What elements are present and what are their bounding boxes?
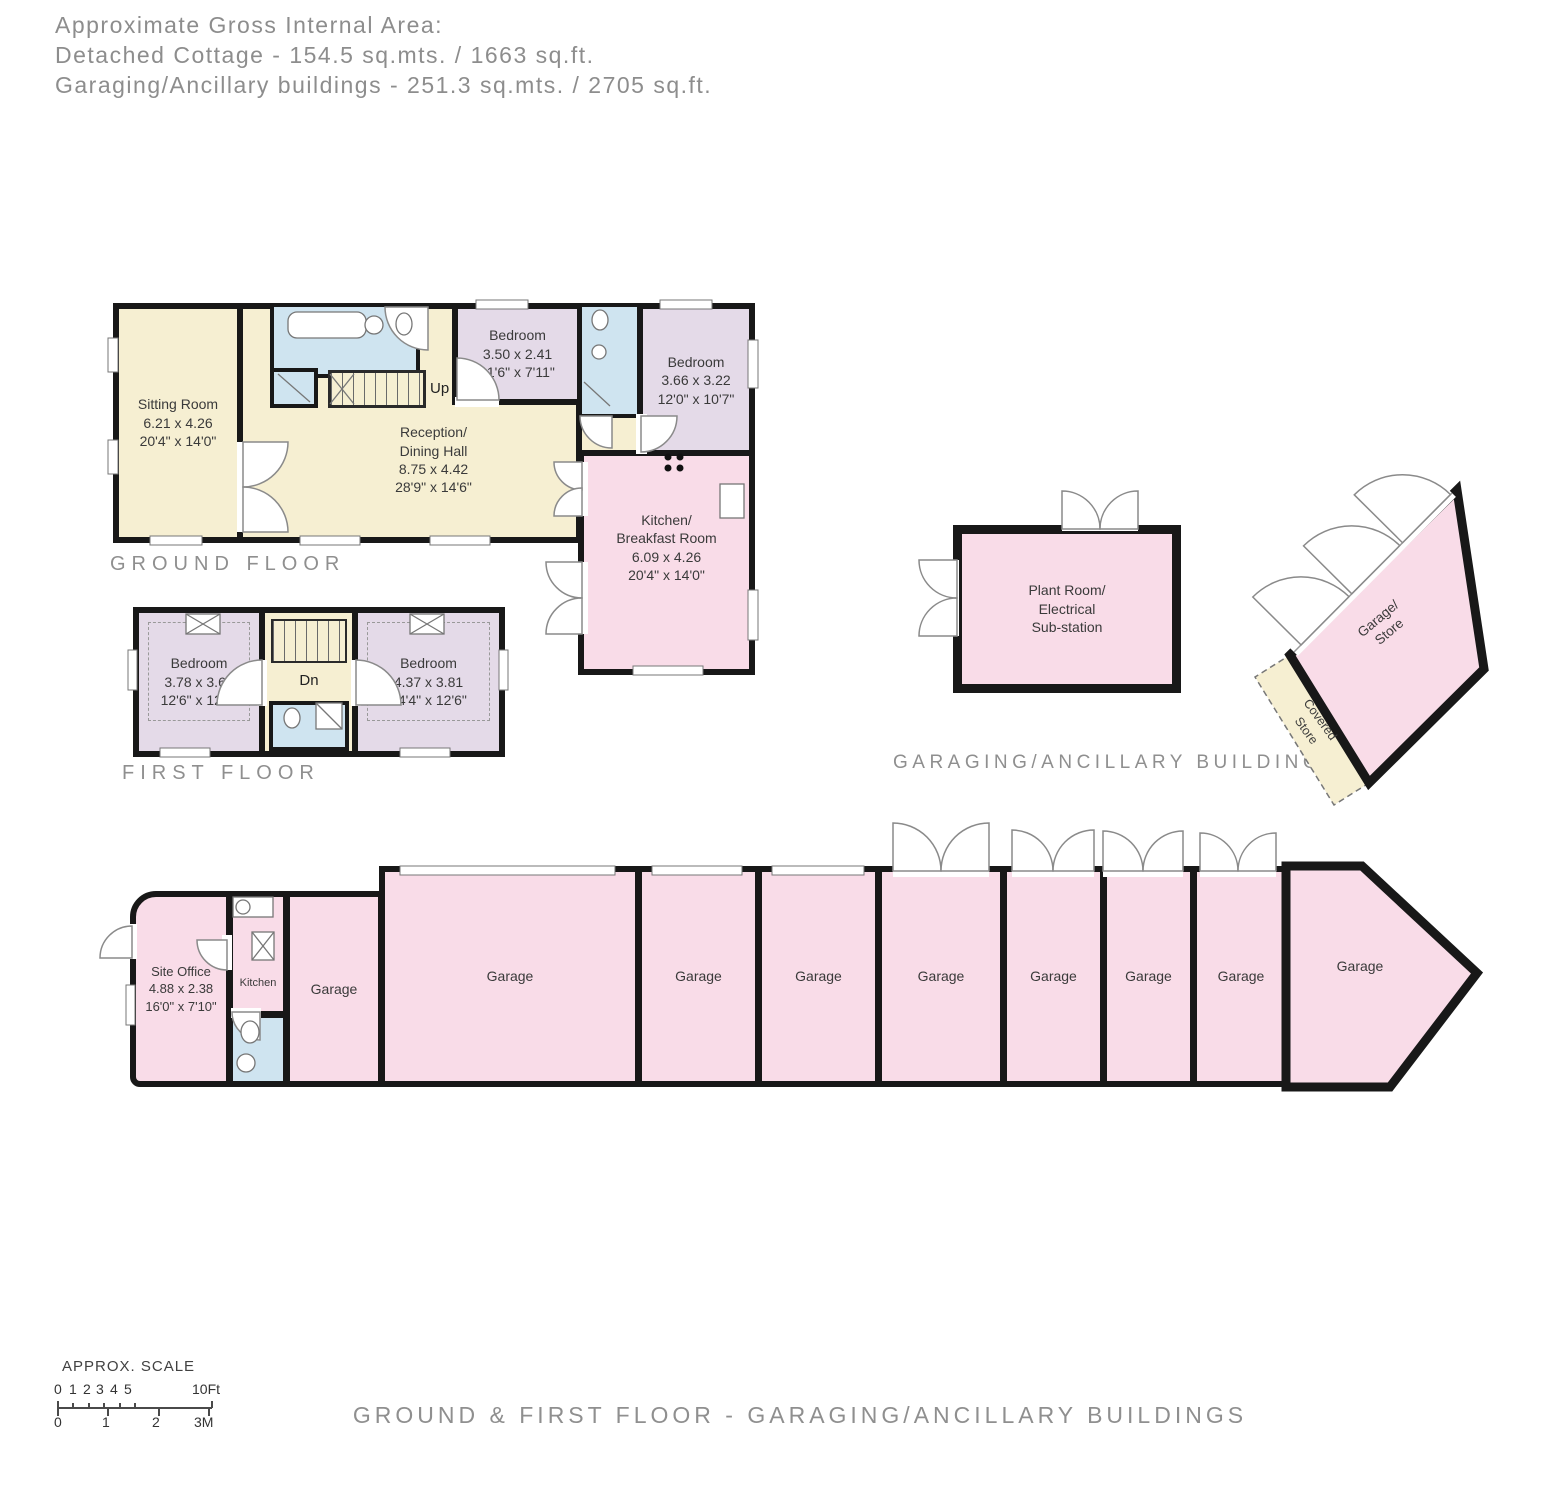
room-garage-8: Garage bbox=[1191, 866, 1291, 1087]
sitting-room-label: Sitting Room bbox=[138, 395, 218, 413]
garage-label: Garage bbox=[487, 967, 534, 985]
approx-scale-title: APPROX. SCALE bbox=[62, 1358, 195, 1375]
scale-m-2: 2 bbox=[152, 1414, 160, 1430]
garaging-ancillary-label: GARAGING/ANCILLARY BUILDINGS bbox=[893, 752, 1339, 774]
scale-ft-2: 2 bbox=[83, 1381, 91, 1397]
room-garage-9-label: Garage bbox=[1300, 958, 1420, 974]
plant-room-label-1: Plant Room/ bbox=[1028, 581, 1105, 599]
garage-store-label-2: Store bbox=[1372, 615, 1406, 647]
scale-m-0: 0 bbox=[54, 1414, 62, 1430]
room-garage-3: Garage bbox=[636, 866, 761, 1087]
header-line-3: Garaging/Ancillary buildings - 251.3 sq.… bbox=[55, 70, 712, 100]
reception-label-2: Dining Hall bbox=[400, 442, 468, 460]
stairs-up-label: Up bbox=[430, 380, 449, 397]
garage-store-area bbox=[1290, 490, 1484, 783]
garage-label: Garage bbox=[795, 967, 842, 985]
covered-store-label-1: Covered bbox=[1301, 696, 1340, 742]
sitting-room-dims-ft: 20'4" x 14'0" bbox=[140, 432, 217, 450]
scale-m-1: 1 bbox=[102, 1414, 110, 1430]
room-gf-ensuite bbox=[578, 303, 642, 418]
room-garage-wc bbox=[227, 1012, 289, 1087]
bedroom1-dims-ft: 11'6" x 7'11" bbox=[480, 363, 555, 381]
kitchen-label-2: Breakfast Room bbox=[616, 529, 716, 547]
gf-stairs bbox=[328, 370, 426, 408]
room-garage-1: Garage bbox=[284, 891, 384, 1087]
room-gf-shower bbox=[270, 368, 318, 408]
room-ff-bedroom-1: Bedroom 3.78 x 3.66 12'6" x 12'0" bbox=[133, 607, 265, 757]
room-garage-kitchen: Kitchen bbox=[227, 891, 289, 1017]
plant-room-label-2: Electrical bbox=[1039, 600, 1096, 618]
gross-internal-area-heading: Approximate Gross Internal Area: Detache… bbox=[55, 10, 712, 100]
kitchen-dims-ft: 20'4" x 14'0" bbox=[628, 566, 705, 584]
reception-dims-ft: 28'9" x 14'6" bbox=[395, 478, 472, 496]
room-plant-room: Plant Room/ Electrical Sub-station bbox=[953, 525, 1181, 693]
floorplan-page: Approximate Gross Internal Area: Detache… bbox=[0, 0, 1566, 1486]
bedroom2-label: Bedroom bbox=[668, 353, 725, 371]
covered-store-area bbox=[1255, 655, 1369, 805]
room-garage-2: Garage bbox=[379, 866, 641, 1087]
scale-ft-row: 0 1 2 3 4 5 10Ft bbox=[54, 1381, 304, 1399]
room-garage-9 bbox=[1286, 866, 1477, 1087]
garage-label: Garage bbox=[1218, 967, 1265, 985]
kitchen-label-1: Kitchen/ bbox=[641, 511, 692, 529]
bedroom1-label: Bedroom bbox=[489, 326, 546, 344]
scale-ft-3: 3 bbox=[96, 1381, 104, 1397]
scale-m-row: 0 1 2 3M bbox=[54, 1414, 304, 1432]
footer-caption: GROUND & FIRST FLOOR - GARAGING/ANCILLAR… bbox=[300, 1402, 1300, 1429]
ff-stairs bbox=[271, 619, 347, 663]
garage-kitchen-label: Kitchen bbox=[240, 976, 277, 991]
room-garage-5: Garage bbox=[876, 866, 1006, 1087]
bedroom2-dims-m: 3.66 x 3.22 bbox=[661, 371, 730, 389]
room-gf-bedroom-1: Bedroom 3.50 x 2.41 11'6" x 7'11" bbox=[452, 303, 583, 405]
header-line-1: Approximate Gross Internal Area: bbox=[55, 10, 712, 40]
garage-label: Garage bbox=[311, 980, 358, 998]
sitting-room-dims-m: 6.21 x 4.26 bbox=[143, 414, 212, 432]
plant-room-label-3: Sub-station bbox=[1032, 618, 1103, 636]
header-line-2: Detached Cottage - 154.5 sq.mts. / 1663 … bbox=[55, 40, 712, 70]
scale-ft-1: 1 bbox=[69, 1381, 77, 1397]
garage-label: Garage bbox=[1125, 967, 1172, 985]
garage-label: Garage bbox=[918, 967, 965, 985]
site-office-label: Site Office bbox=[151, 963, 211, 980]
ground-floor-label: GROUND FLOOR bbox=[110, 553, 345, 576]
reception-dims-m: 8.75 x 4.42 bbox=[399, 460, 468, 478]
room-gf-bedroom-2: Bedroom 3.66 x 3.22 12'0" x 10'7" bbox=[637, 303, 755, 458]
garage-label: Garage bbox=[675, 967, 722, 985]
site-office-dims-ft: 16'0" x 7'10" bbox=[145, 998, 216, 1015]
stairs-down-label: Dn bbox=[265, 671, 353, 691]
scale-ft-5: 5 bbox=[124, 1381, 132, 1397]
scale-ft-max: 10Ft bbox=[192, 1381, 220, 1397]
site-office-dims-m: 4.88 x 2.38 bbox=[149, 980, 213, 997]
room-garage-7: Garage bbox=[1101, 866, 1196, 1087]
reduced-headroom-outline bbox=[367, 622, 490, 721]
ff-mid-landing: Dn bbox=[259, 607, 359, 757]
garage-store-door-arcs bbox=[1253, 447, 1451, 645]
garage-label: Garage bbox=[1030, 967, 1077, 985]
room-ff-bedroom-2: Bedroom 4.37 x 3.81 14'4" x 12'6" bbox=[352, 607, 505, 757]
room-sitting-room: Sitting Room 6.21 x 4.26 20'4" x 14'0" bbox=[113, 303, 243, 543]
scale-ft-4: 4 bbox=[110, 1381, 118, 1397]
room-ff-bathroom bbox=[269, 701, 349, 751]
reduced-headroom-outline bbox=[148, 622, 250, 721]
scale-ft-0: 0 bbox=[54, 1381, 62, 1397]
kitchen-dims-m: 6.09 x 4.26 bbox=[632, 548, 701, 566]
room-garage-4: Garage bbox=[756, 866, 881, 1087]
covered-store-label-2: Store bbox=[1292, 714, 1321, 746]
garage-store-label-1: Garage/ bbox=[1355, 597, 1402, 640]
scale-m-3: 3M bbox=[194, 1414, 213, 1430]
reception-label-1: Reception/ bbox=[400, 423, 467, 441]
first-floor-label: FIRST FLOOR bbox=[122, 762, 320, 785]
bedroom2-dims-ft: 12'0" x 10'7" bbox=[658, 390, 735, 408]
room-garage-6: Garage bbox=[1001, 866, 1106, 1087]
bedroom1-dims-m: 3.50 x 2.41 bbox=[483, 345, 552, 363]
room-gf-bathroom bbox=[270, 303, 420, 378]
room-kitchen-breakfast: Kitchen/ Breakfast Room 6.09 x 4.26 20'4… bbox=[578, 450, 755, 675]
room-site-office: Site Office 4.88 x 2.38 16'0" x 7'10" bbox=[130, 891, 232, 1087]
